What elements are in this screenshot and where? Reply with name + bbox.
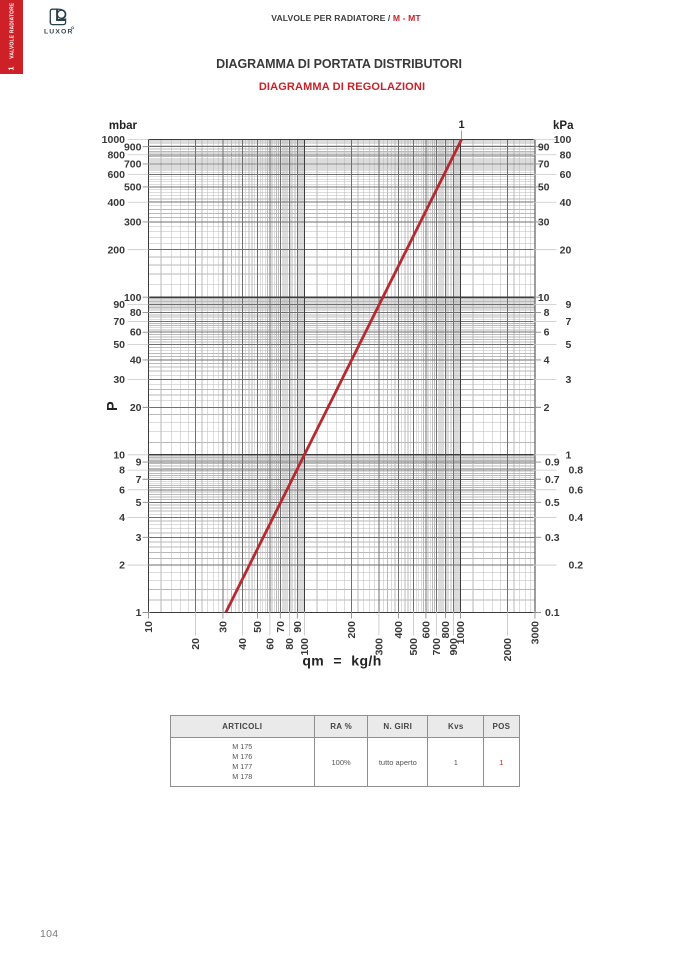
svg-text:0.2: 0.2 xyxy=(569,560,584,572)
svg-text:70: 70 xyxy=(275,621,287,633)
svg-text:300: 300 xyxy=(124,217,142,229)
svg-text:800: 800 xyxy=(107,149,125,161)
svg-text:50: 50 xyxy=(538,182,550,194)
svg-text:0.3: 0.3 xyxy=(545,532,560,544)
svg-text:90: 90 xyxy=(292,621,304,633)
svg-text:20: 20 xyxy=(130,402,142,414)
svg-text:mbar: mbar xyxy=(109,120,138,132)
svg-text:0.8: 0.8 xyxy=(569,465,584,477)
svg-text:1000: 1000 xyxy=(102,134,126,146)
svg-text:P: P xyxy=(105,401,121,411)
svg-text:50: 50 xyxy=(252,621,264,633)
svg-text:5: 5 xyxy=(136,497,142,509)
svg-text:70: 70 xyxy=(113,316,125,328)
svg-text:0.7: 0.7 xyxy=(545,474,560,486)
svg-text:30: 30 xyxy=(113,374,125,386)
svg-text:500: 500 xyxy=(408,638,420,656)
svg-text:200: 200 xyxy=(346,621,358,639)
svg-text:9: 9 xyxy=(565,299,571,311)
svg-text:10: 10 xyxy=(143,621,155,633)
svg-text:8: 8 xyxy=(544,307,550,319)
svg-text:4: 4 xyxy=(119,512,125,524)
svg-text:1: 1 xyxy=(136,607,142,619)
svg-text:80: 80 xyxy=(130,307,142,319)
svg-text:20: 20 xyxy=(560,244,572,256)
svg-text:0.4: 0.4 xyxy=(569,512,584,524)
svg-text:3: 3 xyxy=(136,532,142,544)
svg-text:40: 40 xyxy=(237,638,249,650)
svg-text:60: 60 xyxy=(264,638,276,650)
svg-text:0.9: 0.9 xyxy=(545,457,560,469)
svg-text:700: 700 xyxy=(431,638,443,656)
svg-text:200: 200 xyxy=(107,244,125,256)
svg-text:9: 9 xyxy=(136,457,142,469)
svg-text:80: 80 xyxy=(284,638,296,650)
svg-text:400: 400 xyxy=(393,621,405,639)
svg-text:0.5: 0.5 xyxy=(545,497,560,509)
svg-text:90: 90 xyxy=(538,141,550,153)
svg-text:7: 7 xyxy=(136,474,142,486)
svg-text:10: 10 xyxy=(538,292,550,304)
svg-text:20: 20 xyxy=(190,638,202,650)
svg-text:80: 80 xyxy=(560,149,572,161)
svg-text:kPa: kPa xyxy=(553,120,574,132)
svg-text:60: 60 xyxy=(130,327,142,339)
svg-text:30: 30 xyxy=(218,621,230,633)
svg-text:600: 600 xyxy=(107,169,125,181)
svg-text:3000: 3000 xyxy=(530,621,542,645)
svg-text:1: 1 xyxy=(458,119,464,131)
svg-text:10: 10 xyxy=(113,449,125,461)
svg-text:7: 7 xyxy=(565,316,571,328)
svg-text:qm = kg/h: qm = kg/h xyxy=(302,653,381,669)
svg-text:8: 8 xyxy=(119,465,125,477)
svg-text:500: 500 xyxy=(124,182,142,194)
svg-text:100: 100 xyxy=(554,134,572,146)
svg-text:30: 30 xyxy=(538,217,550,229)
svg-text:1: 1 xyxy=(565,449,571,461)
svg-text:0.1: 0.1 xyxy=(545,607,560,619)
svg-text:60: 60 xyxy=(560,169,572,181)
svg-text:6: 6 xyxy=(544,327,550,339)
svg-text:2000: 2000 xyxy=(502,638,514,662)
svg-text:400: 400 xyxy=(107,197,125,209)
svg-text:1000: 1000 xyxy=(455,621,467,645)
svg-text:70: 70 xyxy=(538,159,550,171)
svg-text:50: 50 xyxy=(113,339,125,351)
svg-text:4: 4 xyxy=(544,355,550,367)
svg-text:100: 100 xyxy=(124,292,142,304)
svg-text:700: 700 xyxy=(124,159,142,171)
svg-text:3: 3 xyxy=(565,374,571,386)
svg-text:800: 800 xyxy=(440,621,452,639)
svg-text:5: 5 xyxy=(565,339,571,351)
svg-text:2: 2 xyxy=(119,560,125,572)
svg-text:90: 90 xyxy=(113,299,125,311)
svg-text:40: 40 xyxy=(560,197,572,209)
svg-text:600: 600 xyxy=(420,621,432,639)
svg-text:2: 2 xyxy=(544,402,550,414)
svg-text:900: 900 xyxy=(124,141,142,153)
svg-text:40: 40 xyxy=(130,355,142,367)
svg-text:6: 6 xyxy=(119,484,125,496)
svg-text:0.6: 0.6 xyxy=(569,484,584,496)
